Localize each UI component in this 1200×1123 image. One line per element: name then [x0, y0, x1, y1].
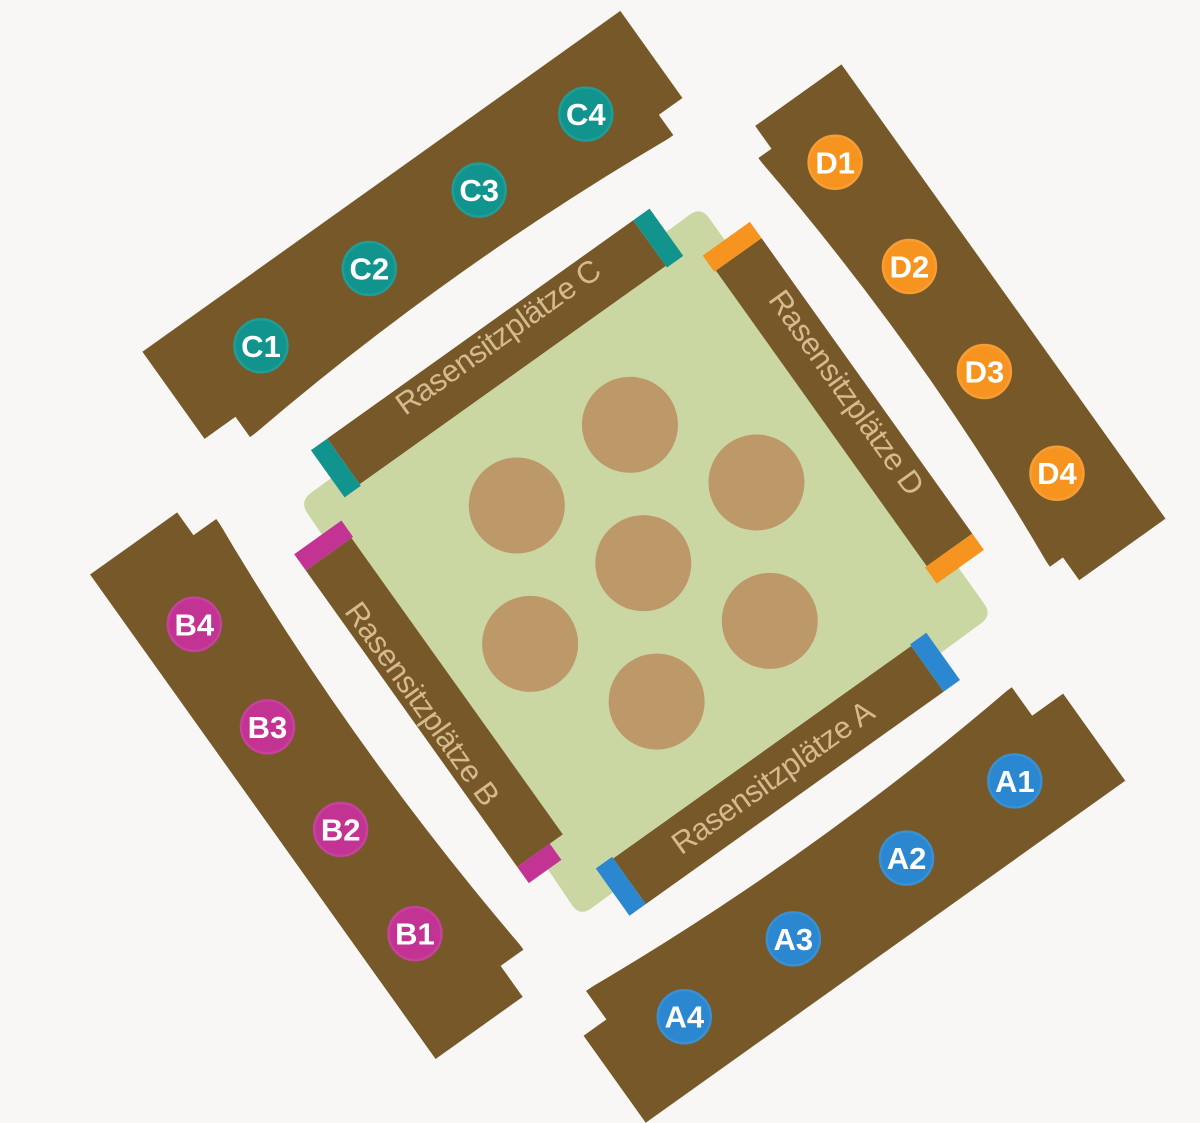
- svg-text:B1: B1: [395, 917, 435, 952]
- svg-text:B4: B4: [174, 607, 214, 642]
- svg-text:C4: C4: [566, 97, 606, 132]
- svg-text:C3: C3: [459, 173, 499, 208]
- svg-text:A3: A3: [774, 922, 814, 957]
- svg-text:D3: D3: [965, 354, 1005, 389]
- svg-text:B2: B2: [321, 812, 361, 847]
- svg-text:D4: D4: [1037, 456, 1077, 491]
- svg-text:A2: A2: [887, 841, 927, 876]
- svg-text:C2: C2: [349, 252, 389, 287]
- svg-text:A1: A1: [995, 764, 1035, 799]
- svg-text:C1: C1: [241, 329, 281, 364]
- svg-text:A4: A4: [664, 1000, 704, 1035]
- svg-text:D1: D1: [815, 145, 855, 180]
- svg-text:B3: B3: [248, 710, 288, 745]
- svg-text:D2: D2: [890, 249, 930, 284]
